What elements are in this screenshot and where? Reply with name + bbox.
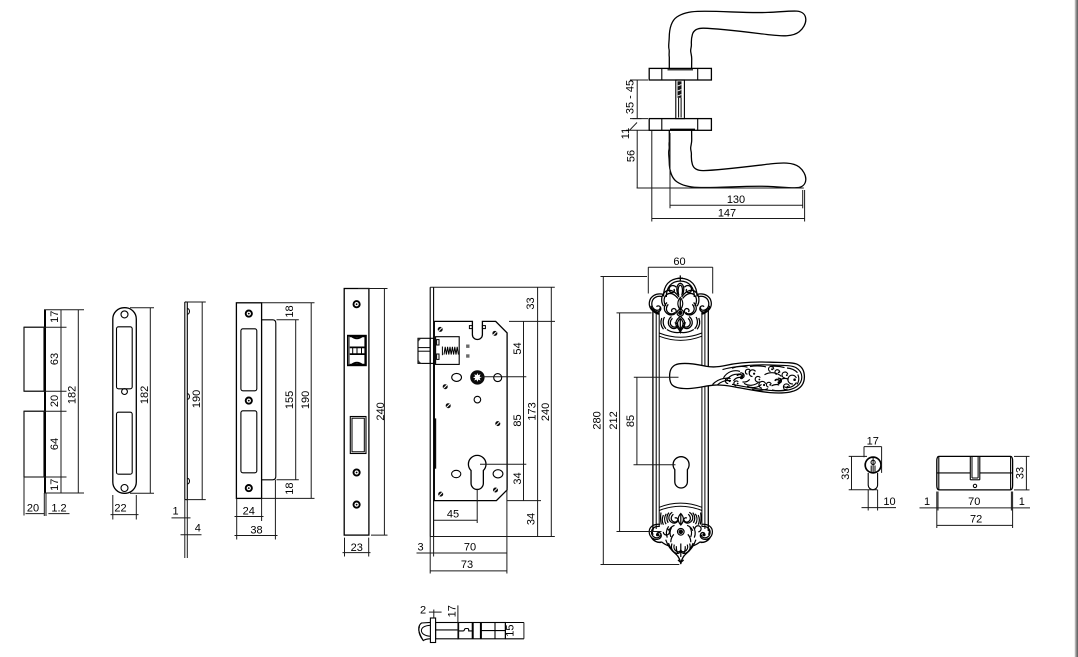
- svg-text:72: 72: [970, 514, 982, 526]
- svg-text:33: 33: [1015, 467, 1027, 479]
- svg-text:240: 240: [375, 402, 387, 420]
- svg-text:24: 24: [243, 505, 255, 517]
- svg-text:35 - 45: 35 - 45: [624, 80, 636, 114]
- svg-text:70: 70: [464, 541, 476, 553]
- svg-text:18: 18: [284, 305, 296, 317]
- svg-text:22: 22: [114, 502, 126, 514]
- svg-text:85: 85: [625, 415, 637, 427]
- svg-text:33: 33: [840, 468, 852, 480]
- svg-text:1.2: 1.2: [51, 502, 66, 514]
- svg-text:182: 182: [139, 386, 151, 404]
- svg-text:3: 3: [417, 541, 423, 553]
- svg-text:1: 1: [1019, 496, 1025, 508]
- svg-text:54: 54: [512, 342, 524, 354]
- svg-text:85: 85: [512, 414, 524, 426]
- svg-text:17: 17: [867, 435, 879, 447]
- svg-text:212: 212: [608, 411, 620, 429]
- svg-text:147: 147: [718, 207, 736, 219]
- svg-text:17: 17: [446, 605, 458, 617]
- svg-text:173: 173: [526, 402, 538, 420]
- svg-text:20: 20: [49, 395, 61, 407]
- svg-text:2: 2: [420, 605, 426, 617]
- svg-text:73: 73: [461, 559, 473, 571]
- svg-text:34: 34: [525, 513, 537, 525]
- svg-text:240: 240: [540, 403, 552, 421]
- svg-text:280: 280: [592, 411, 604, 429]
- svg-text:63: 63: [49, 353, 61, 365]
- svg-text:33: 33: [525, 297, 537, 309]
- svg-text:190: 190: [191, 390, 203, 408]
- svg-text:11: 11: [620, 128, 632, 139]
- svg-text:23: 23: [351, 542, 363, 554]
- svg-text:130: 130: [727, 194, 745, 206]
- svg-text:60: 60: [673, 256, 685, 268]
- svg-text:38: 38: [250, 524, 262, 536]
- svg-text:56: 56: [625, 150, 637, 162]
- svg-text:64: 64: [49, 438, 61, 450]
- svg-text:45: 45: [447, 509, 459, 521]
- svg-text:155: 155: [284, 391, 296, 409]
- svg-text:4: 4: [195, 523, 201, 535]
- svg-text:18: 18: [284, 482, 296, 494]
- svg-text:182: 182: [67, 386, 79, 404]
- svg-text:1: 1: [172, 506, 178, 518]
- svg-text:70: 70: [968, 496, 980, 508]
- svg-text:15: 15: [505, 624, 517, 636]
- svg-text:17: 17: [49, 311, 61, 323]
- svg-text:10: 10: [883, 496, 895, 508]
- svg-text:17: 17: [49, 479, 61, 491]
- svg-text:190: 190: [300, 391, 312, 409]
- svg-text:1: 1: [924, 496, 930, 508]
- svg-text:34: 34: [512, 472, 524, 484]
- svg-text:20: 20: [27, 502, 39, 514]
